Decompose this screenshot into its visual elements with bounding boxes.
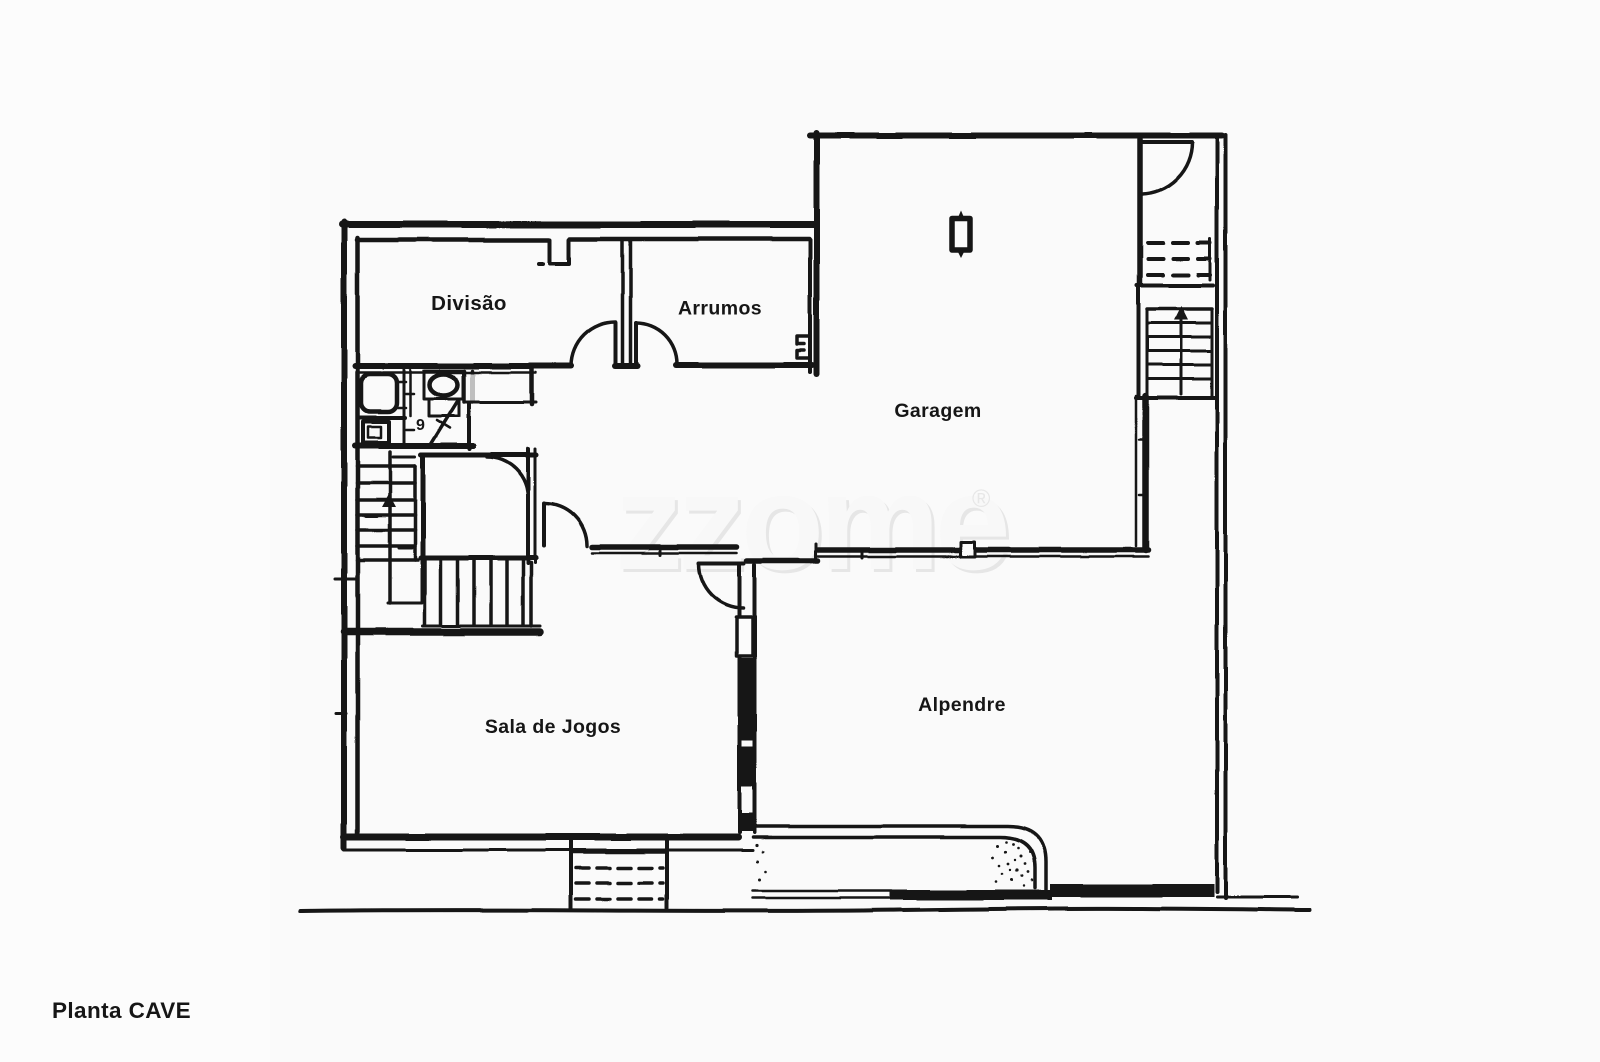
svg-text:Planta CAVE: Planta CAVE (52, 998, 191, 1023)
svg-text:Alpendre: Alpendre (918, 694, 1006, 716)
svg-text:Sala de Jogos: Sala de Jogos (485, 716, 621, 738)
svg-text:®: ® (972, 485, 991, 513)
svg-text:zzome: zzome (615, 446, 1006, 598)
svg-text:Arrumos: Arrumos (678, 298, 762, 320)
svg-text:Garagem: Garagem (894, 400, 981, 422)
svg-text:9: 9 (416, 417, 425, 434)
svg-text:Divisão: Divisão (431, 292, 507, 315)
